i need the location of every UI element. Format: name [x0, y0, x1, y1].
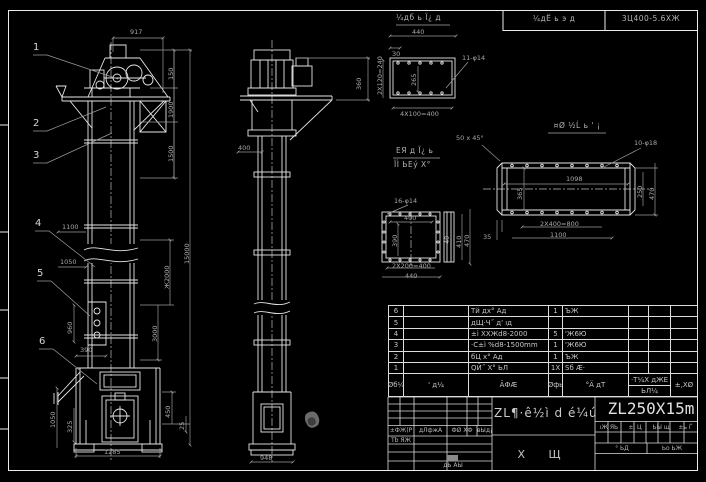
bom-weight-total [649, 340, 671, 350]
dim-1050-a: 1050 [60, 258, 77, 266]
titleblock-right-label-1: ıЖ ЯЬ [596, 424, 622, 431]
titleblock-file-label: ФØ ХФ [447, 427, 477, 434]
sheet-type-label: Х Щ [494, 448, 594, 461]
dim-1050-b: 1050 [49, 411, 57, 428]
dimension-lines [57, 36, 658, 462]
bom-no: 5 [389, 317, 404, 327]
model-number: ZL250X15m [606, 399, 696, 418]
bom-remark [671, 306, 697, 316]
title-strip-cell-1: ¼дЁ ь э д [503, 14, 605, 23]
dim-917: 917 [130, 28, 142, 36]
detail-a-channel-view [390, 58, 455, 98]
bom-qty: 1X [549, 363, 563, 373]
bom-remark [671, 363, 697, 373]
bom-material: ЪЖ [563, 352, 629, 362]
holes-callout-11-14: 11-φ14 [462, 54, 485, 62]
bom-name: ·C±ì %d8-1500mm [469, 340, 549, 350]
bom-remark [671, 329, 697, 339]
bom-weight-unit [629, 363, 649, 373]
bom-material: 'Ж6Ю [563, 340, 629, 350]
bom-weight-total [649, 363, 671, 373]
bom-header-material: °Ä дТ [563, 374, 629, 396]
bom-header-name: ÃФÆ [469, 374, 549, 396]
dim-x2000: Ж2000 [163, 265, 171, 289]
callout-5: 5 [37, 268, 43, 279]
titleblock-right-label-2: ±ì Ц [622, 424, 648, 431]
dim-1100: 1100 [62, 223, 79, 231]
bom-drawing-no [404, 340, 469, 350]
dim-1500: 1500 [167, 145, 175, 162]
bom-weight-total [649, 329, 671, 339]
table-row: 4 ±ì XХЖd8-2000 5 'Ж6Ю [389, 329, 697, 340]
bom-weight-unit [629, 329, 649, 339]
bom-no: 3 [389, 340, 404, 350]
dim-2x120: 2X120=240 [376, 56, 384, 95]
bom-material: ЪЖ [563, 306, 629, 316]
bom-header-qty: Øфь [549, 374, 563, 396]
dim-450: 450 [164, 406, 172, 418]
detail-c-label: ¤Ø ½Ĺ ь ' ¡ [548, 121, 606, 130]
dim-150: 150 [167, 68, 175, 80]
titleblock-right-label-4: ±ь Ѓ [674, 424, 697, 431]
dim-265: 265 [410, 74, 418, 86]
bom-weight-unit [629, 306, 649, 316]
front-break-line [84, 244, 138, 263]
bom-remark [671, 352, 697, 362]
bom-name: QЙ˝ X° ЬЛ [469, 363, 549, 373]
bom-no: 6 [389, 306, 404, 316]
bom-no: 1 [389, 363, 404, 373]
bom-weight-total [649, 352, 671, 362]
titleblock-sign-label: вЫд¡ [477, 427, 492, 434]
dim-440-b: 440 [405, 272, 417, 280]
dim-365: 365 [516, 188, 524, 200]
dim-410-b: 410 [455, 236, 463, 248]
dim-360: 360 [355, 78, 363, 90]
titleblock-mark-label: ±ФЖ(Р [388, 427, 414, 434]
dim-1100-c: 1100 [550, 231, 567, 239]
bom-qty: 5 [549, 329, 563, 339]
table-row: 5 дЩ·Ч˝ д' ıд [389, 317, 697, 328]
dim-400-side: 400 [238, 144, 250, 152]
table-row: 1 QЙ˝ X° ЬЛ 1X Ѕб Æ· [389, 363, 697, 374]
bom-name: ±ì XХЖd8-2000 [469, 329, 549, 339]
dim-390: 390 [80, 346, 92, 354]
side-elevation-view [240, 50, 332, 455]
title-strip-cell-2: 3Ц400-5.6ХЖ [605, 14, 697, 23]
dim-15000: 15000 [183, 243, 191, 264]
chamfer-note: 50 x 45° [456, 134, 484, 142]
drawing-title: ZL¶·ê½ì d é¼ú [494, 406, 594, 420]
dim-2x400: 2X400=800 [540, 220, 579, 228]
cursor-artifact [305, 412, 319, 428]
bom-weight-unit [629, 317, 649, 327]
detail-b-label-2: ÏÌ ЬЕý Х° [394, 160, 431, 169]
bom-remark [671, 317, 697, 327]
bom-header-row: Øб¼ ' д¼ ÃФÆ Øфь °Ä дТ ·Т¼Х дЖЕ ЬЛ¼ ±,XØ [389, 374, 697, 396]
bom-name: Тй дх° Ад [469, 306, 549, 316]
bom-weight-total [649, 306, 671, 316]
dim-25: 25 [178, 422, 186, 430]
sheet-frame [0, 11, 698, 471]
detail-a-view-label: ¼дб ь Ï¿ д [396, 13, 441, 22]
dim-40-b: 40 [443, 236, 451, 244]
bom-qty: 1 [549, 340, 563, 350]
bom-no: 4 [389, 329, 404, 339]
bom-header-weight-top: ·Т¼Х дЖЕ [629, 374, 670, 385]
drawing-canvas [0, 0, 706, 482]
dim-250: 250 [636, 186, 644, 198]
table-row: 3 ·C±ì %d8-1500mm 1 'Ж6Ю [389, 340, 697, 351]
titleblock-stage-label: ° ЬД [598, 445, 646, 452]
bom-drawing-no [404, 329, 469, 339]
callout-3: 3 [33, 150, 39, 161]
callout-4: 4 [35, 218, 41, 229]
dim-2x200: 2X200=400 [392, 262, 431, 270]
side-break-line [254, 300, 290, 315]
bom-header-weight-bottom: ЬЛ¼ [629, 386, 670, 396]
bom-drawing-no [404, 363, 469, 373]
dim-1098: 1098 [566, 175, 583, 183]
bom-header-drawing-no: ' д¼ [404, 374, 469, 396]
dim-1900: 1900 [167, 101, 175, 118]
callout-2: 2 [33, 118, 39, 129]
center-lines [111, 40, 652, 462]
bom-qty: 1 [549, 352, 563, 362]
holes-callout-16-14: 16-φ14 [394, 197, 417, 205]
bom-header-remark: ±,XØ [671, 374, 697, 396]
bom-name: дЩ·Ч˝ д' ıд [469, 317, 549, 327]
dim-325: 325 [66, 421, 74, 433]
callout-1: 1 [33, 42, 39, 53]
bom-weight-unit [629, 340, 649, 350]
bom-drawing-no [404, 352, 469, 362]
bom-name: бЦ х° Ад [469, 352, 549, 362]
titleblock-check-label: дЬ АЫ [440, 462, 466, 469]
bom-qty: 1 [549, 306, 563, 316]
label-underlines [393, 25, 606, 158]
bom-remark [671, 340, 697, 350]
bom-material: Ѕб Æ· [563, 363, 629, 373]
detail-b-label-1: ЕЯ д Ï¿ ь [396, 146, 433, 155]
dim-1285: 1285 [104, 448, 121, 456]
dim-470-b: 470 [463, 235, 471, 247]
dim-470-c: 470 [648, 188, 656, 200]
bom-material: 'Ж6Ю [563, 329, 629, 339]
bom-qty [549, 317, 563, 327]
dim-390-b: 390 [391, 235, 399, 247]
cad-drawing-sheet: ¼дб ь Ï¿ д ¼дЁ ь э д 3Ц400-5.6ХЖ 1 2 3 4… [0, 0, 706, 482]
holes-callout-10-18: 10-φ18 [634, 139, 657, 147]
bom-header-weight: ·Т¼Х дЖЕ ЬЛ¼ [629, 374, 671, 396]
dim-400-b: 400 [404, 214, 416, 222]
callout-6: 6 [39, 336, 45, 347]
dim-960: 960 [66, 322, 74, 334]
titleblock-right-label-3: ЬЫ щ [648, 424, 674, 431]
dim-4x100: 4X100=400 [400, 110, 439, 118]
titleblock-count-label: дЛфжА [414, 427, 447, 434]
bom-no: 2 [389, 352, 404, 362]
titleblock-design-label: Тb ЯЖ [388, 437, 414, 444]
bom-weight-unit [629, 352, 649, 362]
bom-weight-total [649, 317, 671, 327]
dim-35: 35 [483, 233, 491, 241]
dim-30: 30 [392, 50, 400, 58]
bom-drawing-no [404, 306, 469, 316]
table-row: 2 бЦ х° Ад 1 ЪЖ [389, 352, 697, 363]
bom-drawing-no [404, 317, 469, 327]
dim-3000: 3000 [151, 325, 159, 342]
bom-table: 6 Тй дх° Ад 1 ЪЖ 5 дЩ·Ч˝ д' ıд 4 ±ì XХЖd… [388, 305, 698, 397]
dim-440-top: 440 [412, 28, 424, 36]
dim-948: 948 [260, 454, 272, 462]
bom-material [563, 317, 629, 327]
titleblock-sheets-label: Ьо ЬЖ [648, 445, 696, 452]
table-row: 6 Тй дх° Ад 1 ЪЖ [389, 306, 697, 317]
bom-header-no: Øб¼ [389, 374, 404, 396]
